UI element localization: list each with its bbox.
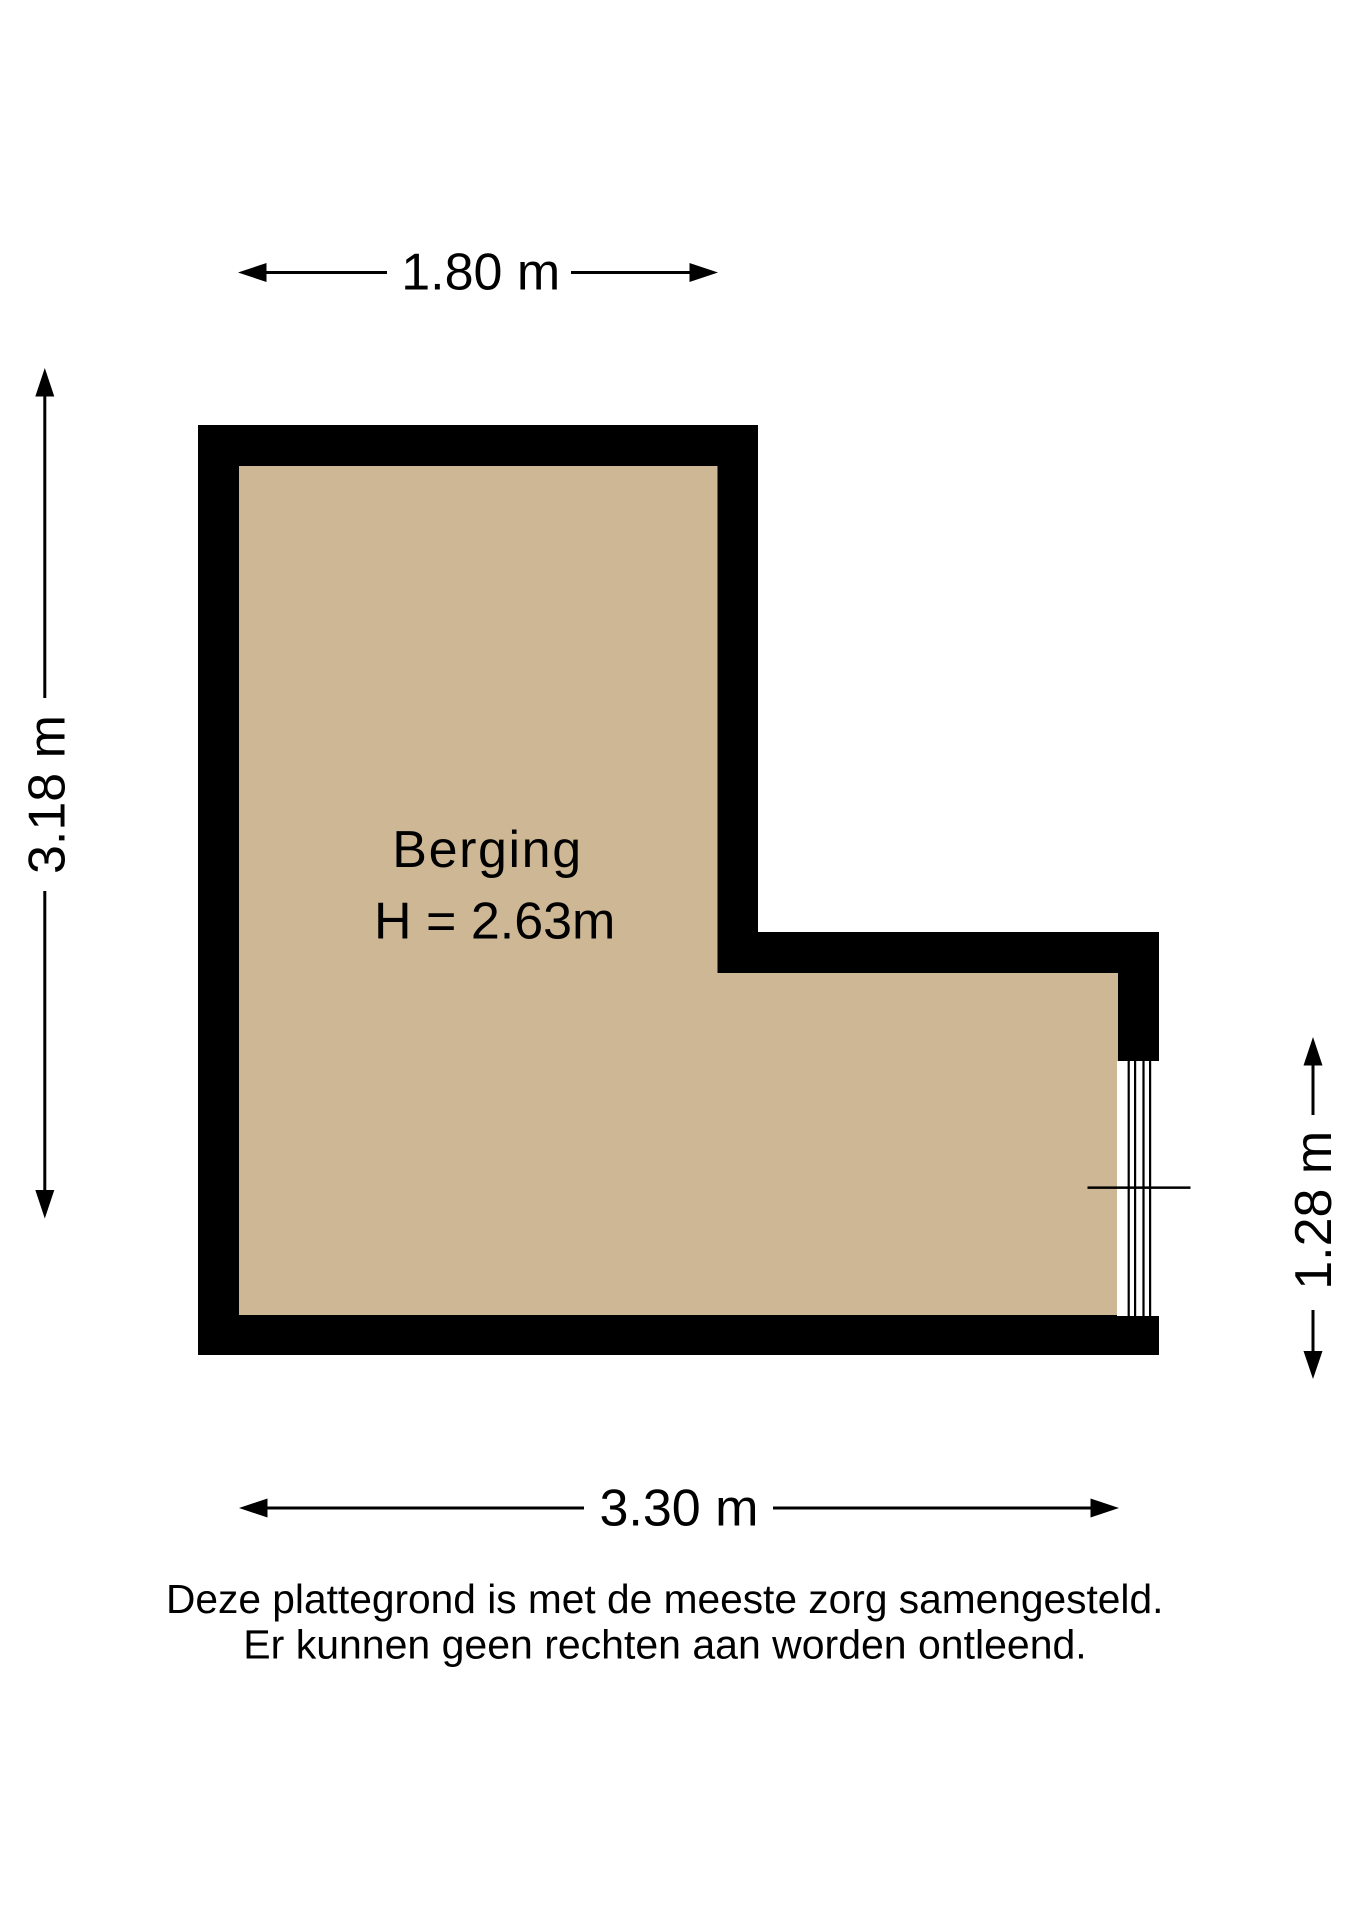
- svg-text:H = 2.63m: H = 2.63m: [374, 893, 615, 951]
- svg-text:1.80 m: 1.80 m: [401, 244, 560, 302]
- svg-text:Deze plattegrond is met de mee: Deze plattegrond is met de meeste zorg s…: [166, 1576, 1163, 1622]
- svg-text:1.28 m: 1.28 m: [1285, 1131, 1343, 1290]
- svg-text:Berging: Berging: [392, 821, 582, 879]
- svg-text:3.30 m: 3.30 m: [600, 1480, 759, 1538]
- svg-text:Er kunnen geen rechten aan wor: Er kunnen geen rechten aan worden ontlee…: [243, 1621, 1086, 1667]
- svg-text:3.18 m: 3.18 m: [18, 715, 76, 874]
